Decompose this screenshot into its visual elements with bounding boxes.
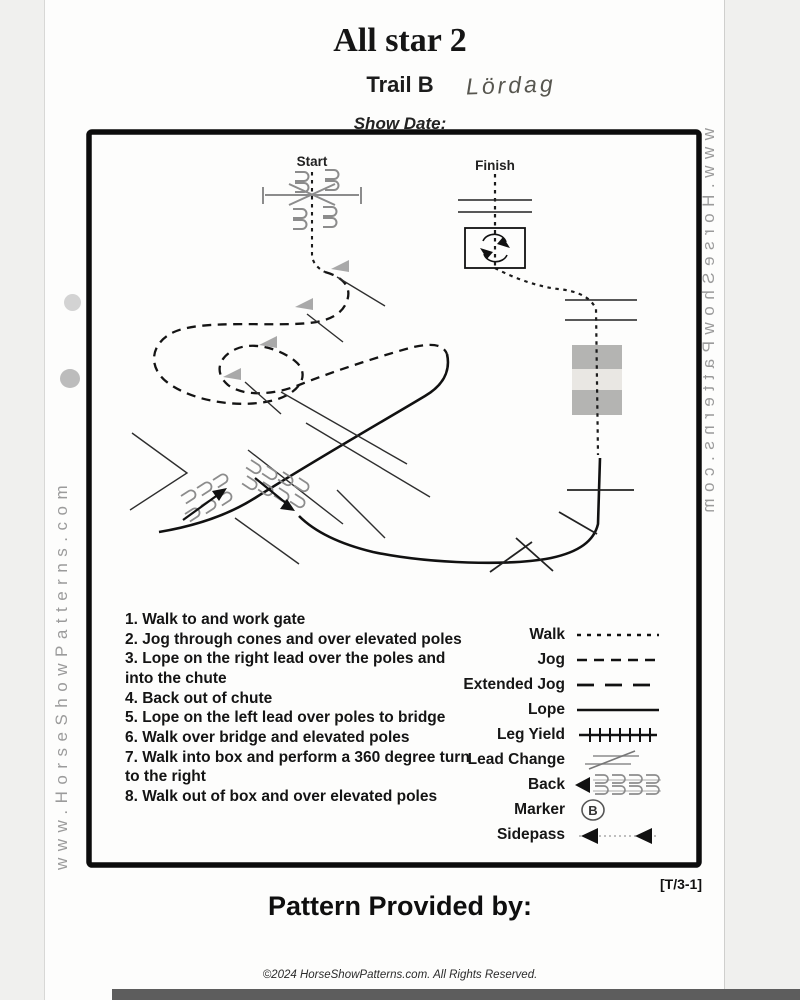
lope-path-bottom-sweep (299, 458, 600, 563)
instructions-list: 1. Walk to and work gate 2. Jog through … (125, 610, 477, 807)
legend-row-extended-jog: Extended Jog (452, 672, 668, 697)
finish-label: Finish (475, 158, 515, 173)
legend-label: Extended Jog (452, 676, 565, 694)
legend-label: Lope (452, 701, 565, 719)
instruction-item: 1. Walk to and work gate (125, 610, 477, 630)
extended-jog-line-symbol (573, 674, 663, 696)
cone-icon (259, 336, 277, 348)
sidepass-symbol (573, 824, 663, 846)
legend-row-leg-yield: Leg Yield (452, 722, 668, 747)
walk-line-symbol (573, 624, 663, 646)
legend: Walk Jog Extended Jog Lope Leg Yield (452, 622, 668, 847)
jog-loop-path (154, 272, 447, 404)
marker-symbol: B (573, 798, 663, 822)
instruction-item: 4. Back out of chute (125, 689, 477, 709)
back-arrowhead-icon (575, 777, 590, 793)
handwritten-note: Lördag (466, 70, 557, 100)
marker-letter: B (588, 803, 597, 818)
walk-path-start (312, 172, 325, 272)
chevron-marker (130, 433, 187, 510)
instruction-item: 7. Walk into box and perform a 360 degre… (125, 748, 477, 787)
cone-icon (295, 298, 313, 310)
elevated-poles-bridge (565, 300, 637, 320)
cone-icon (223, 368, 241, 380)
bridge-obstacle (572, 345, 622, 415)
sidepass-arrowhead-icon (635, 828, 652, 844)
legend-label: Leg Yield (452, 726, 565, 744)
lead-change-symbol (573, 749, 663, 771)
cone-markers (223, 260, 349, 380)
legend-row-jog: Jog (452, 647, 668, 672)
instruction-item: 3. Lope on the right lead over the poles… (125, 649, 477, 688)
legend-row-back: Back (452, 772, 668, 797)
instruction-item: 5. Lope on the left lead over poles to b… (125, 708, 477, 728)
legend-label: Back (452, 776, 565, 794)
arrowhead-icon (212, 488, 227, 501)
legend-label: Sidepass (452, 826, 565, 844)
pattern-code: [T/3-1] (660, 876, 702, 892)
cone-icon (331, 260, 349, 272)
chute-walls (235, 490, 385, 564)
leg-yield-symbol (573, 724, 663, 746)
instruction-item: 2. Jog through cones and over elevated p… (125, 630, 477, 650)
back-symbol (573, 773, 663, 797)
legend-label: Lead Change (452, 751, 565, 769)
legend-row-lead-change: Lead Change (452, 747, 668, 772)
legend-row-sidepass: Sidepass (452, 822, 668, 847)
trail-subtitle: Trail B (0, 72, 800, 98)
pattern-provided-by-label: Pattern Provided by: (0, 891, 800, 922)
legend-label: Jog (452, 651, 565, 669)
sweep-pole-ticks (490, 490, 634, 572)
legend-label: Marker (452, 801, 565, 819)
instruction-item: 6. Walk over bridge and elevated poles (125, 728, 477, 748)
legend-row-lope: Lope (452, 697, 668, 722)
page-title: All star 2 (0, 22, 800, 60)
copyright-text: ©2024 HorseShowPatterns.com. All Rights … (0, 969, 800, 981)
sidepass-arrowhead-icon (581, 828, 598, 844)
instruction-item: 8. Walk out of box and over elevated pol… (125, 787, 477, 807)
lope-poles (248, 392, 430, 524)
start-label: Start (297, 154, 328, 169)
legend-row-marker: Marker B (452, 797, 668, 822)
legend-label: Walk (452, 626, 565, 644)
legend-row-walk: Walk (452, 622, 668, 647)
jog-line-symbol (573, 649, 663, 671)
lope-line-symbol (573, 699, 663, 721)
bottom-scan-bar (112, 989, 800, 1000)
left-watermark: www.HorseShowPatterns.com (52, 128, 72, 870)
